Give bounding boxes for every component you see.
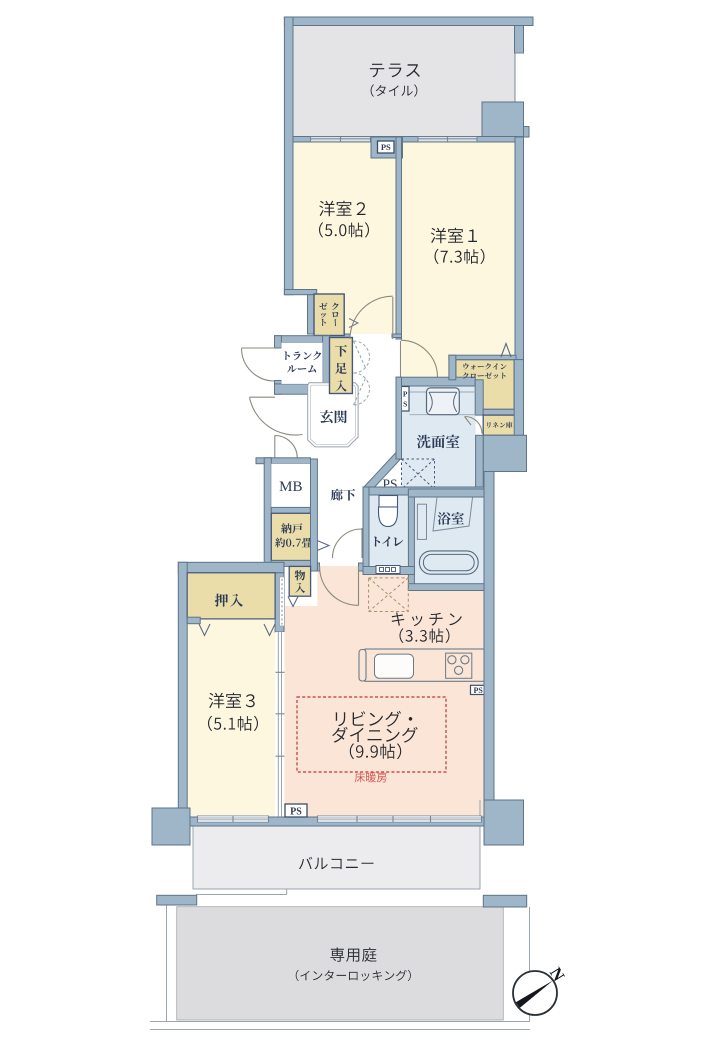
svg-text:P: P bbox=[403, 390, 408, 399]
svg-text:PS: PS bbox=[474, 686, 484, 695]
svg-text:S: S bbox=[403, 400, 407, 409]
svg-text:MB: MB bbox=[279, 479, 302, 495]
svg-text:PS: PS bbox=[290, 807, 302, 818]
svg-text:PS: PS bbox=[381, 142, 391, 152]
